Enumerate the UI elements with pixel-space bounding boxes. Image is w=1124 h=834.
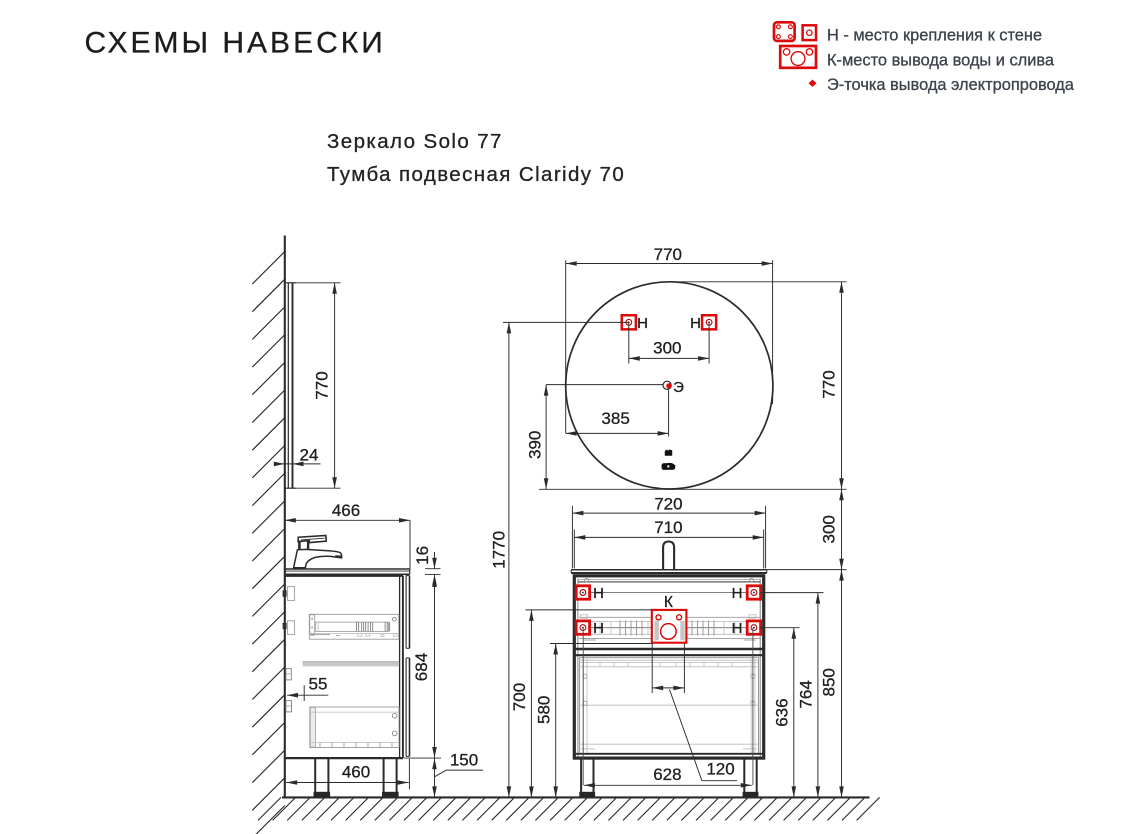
svg-text:460: 460: [342, 762, 370, 781]
svg-text:СХЕМЫ НАВЕСКИ: СХЕМЫ НАВЕСКИ: [85, 27, 386, 60]
svg-text:466: 466: [332, 501, 360, 520]
svg-text:764: 764: [796, 680, 815, 708]
svg-text:К: К: [664, 594, 673, 611]
svg-text:850: 850: [820, 668, 839, 696]
svg-text:720: 720: [654, 495, 682, 514]
svg-text:Н: Н: [732, 620, 743, 637]
svg-text:Тумба подвесная Claridy 70: Тумба подвесная Claridy 70: [327, 163, 625, 186]
svg-text:636: 636: [773, 698, 792, 726]
svg-text:1770: 1770: [489, 531, 508, 569]
svg-text:120: 120: [706, 760, 734, 779]
svg-text:Н - место крепления к стене: Н - место крепления к стене: [827, 27, 1042, 45]
svg-text:Э: Э: [673, 379, 684, 396]
svg-text:К-место вывода воды и слива: К-место вывода воды и слива: [827, 52, 1055, 70]
svg-text:Н: Н: [690, 315, 701, 332]
svg-text:16: 16: [413, 546, 432, 565]
svg-text:770: 770: [654, 245, 682, 264]
svg-text:684: 684: [412, 653, 431, 681]
svg-text:Зеркало Solo 77: Зеркало Solo 77: [327, 130, 503, 153]
svg-text:55: 55: [309, 675, 328, 694]
svg-text:300: 300: [653, 339, 681, 358]
svg-text:390: 390: [526, 431, 545, 459]
svg-text:Н: Н: [637, 315, 648, 332]
svg-text:770: 770: [313, 371, 332, 399]
svg-text:628: 628: [653, 765, 681, 784]
svg-text:Н: Н: [732, 585, 743, 602]
svg-text:Н: Н: [593, 585, 604, 602]
svg-text:700: 700: [510, 683, 529, 711]
svg-text:Н: Н: [593, 620, 604, 637]
svg-text:150: 150: [450, 751, 478, 770]
svg-text:710: 710: [654, 518, 682, 537]
svg-text:Э-точка вывода электропровода: Э-точка вывода электропровода: [827, 76, 1075, 94]
svg-text:24: 24: [300, 446, 319, 465]
svg-text:580: 580: [535, 696, 554, 724]
svg-text:300: 300: [819, 515, 838, 543]
svg-text:385: 385: [601, 409, 629, 428]
svg-text:770: 770: [820, 370, 839, 398]
